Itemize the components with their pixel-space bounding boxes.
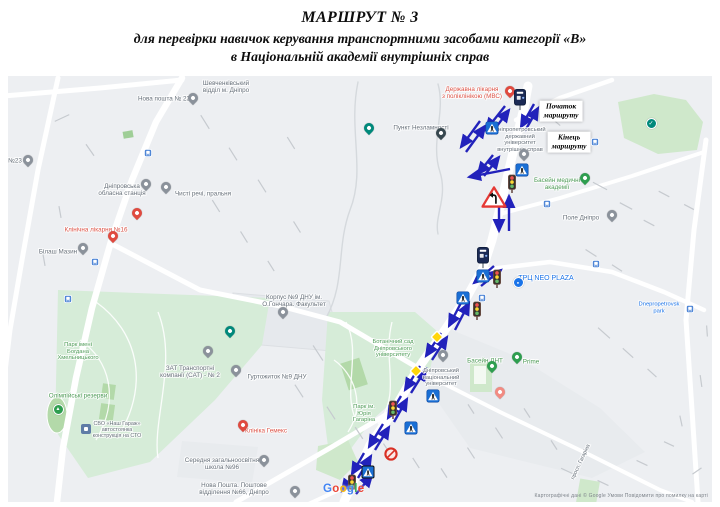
page-title: МАРШРУТ № 3 для перевірки навичок керува… [0,9,720,65]
map-label: Ботанічний сад Дніпровського університет… [372,339,413,359]
blue-square-map-pin [81,424,91,434]
priority-diamond-sign-icon [430,330,444,344]
crosswalk-sign-icon [427,390,440,403]
route-arrow [478,155,493,174]
parking-meter-sign-icon [477,247,490,269]
street-dash [684,204,694,209]
street-dash [241,231,248,242]
traffic-light-sign-icon [389,401,398,420]
street-dash [268,261,274,271]
warning-turn-sign-icon [482,186,507,209]
traffic-light-sign-icon [508,175,517,194]
map-label: Державна лікарня з поліклінікою (МВС) [442,86,502,100]
map-label: СВО «Наш Гараж» автостоянка конструкція … [93,421,142,439]
map-label: Клініка Гемекс [245,427,287,434]
map: Нова пошта № 23Шевченківський відділ м. … [8,76,712,502]
map-label: Нова пошта № 23 [138,95,190,102]
street-dash [229,148,237,161]
crosswalk-sign-icon [477,270,490,283]
route-end-label: Кінець маршруту [548,132,591,153]
street-dash [700,375,702,387]
street-dash [620,203,632,210]
map-label: Парк імені Богдана Хмельницького [57,342,98,362]
map-label: Шевченківський відділ м. Дніпро [203,80,249,94]
traffic-light-sign-icon [473,302,482,321]
google-logo: Google [323,483,364,495]
street-dash [598,328,610,339]
street-dash [637,460,648,465]
crosswalk-dark-sign-icon [362,466,375,479]
map-label: ТРЦ NEO PLAZA [518,275,573,283]
route-arrow [466,126,485,152]
transit-stop-icon [543,200,551,208]
street-dash [623,348,633,357]
street-dash [295,385,303,398]
map-label: Чисті речі, пральня [175,190,231,197]
street-dash [287,137,294,149]
street-dash [659,191,670,197]
route-arrow [461,121,480,147]
crosswalk-sign-icon [457,292,470,305]
street-dash [212,200,219,212]
title-line3: в Національній академії внутрішніх справ [0,49,720,65]
map-label: ЗАТ Транспортні компанії (САТ) - № 2 [160,365,220,379]
street-dash [644,220,655,226]
map-label: Гуртожиток №9 ДНУ [247,373,306,380]
map-label: Дніпровська обласна станція [98,183,145,197]
route-map-page: МАРШРУТ № 3 для перевірки навичок керува… [0,0,720,507]
crosswalk-sign-icon [486,122,499,135]
map-label: №23 [8,157,22,164]
map-label: Басейн медичні академії [534,177,580,191]
crosswalk-sign-icon [516,164,529,177]
street-dash [258,180,266,193]
transit-stop-icon [478,294,486,302]
transit-stop-icon [591,138,599,146]
street-dash [586,249,597,256]
title-line1: МАРШРУТ № 3 [0,9,720,27]
map-label: Парк ім. Юрія Гагаріна [353,404,375,424]
route-start-label: Початок маршруту [540,101,583,122]
map-attribution: Картографічні дані © Google Умови Повідо… [535,493,708,499]
street-dash [59,206,61,218]
no-stopping-sign-icon [384,447,398,461]
street-dash [707,326,708,337]
priority-diamond-sign-icon [409,364,423,378]
map-label: Білаш Мазин [39,248,77,255]
street-dash [55,115,70,122]
map-label: Олімпійські резерви [49,392,107,399]
map-label: Dnepropetrovsk park [633,301,686,314]
street-dash [294,221,301,232]
map-label: Prime [523,358,539,365]
street-dash [86,144,94,155]
map-label: Поле Дніпро [563,214,599,221]
street-dash [201,115,209,129]
blue-circle-map-pin: ● [513,277,524,288]
title-line2: для перевірки навичок керування транспор… [0,31,720,47]
transit-stop-icon [144,149,152,157]
map-label: Корпус №9 ДНУ ім. О.Гончара. Факультет [262,294,325,308]
map-label: Клінічна лікарня №16 [65,226,128,233]
map-label: Нова Пошта. Поштове відділення №66, Дніп… [199,482,269,496]
map-label: Басейн ДНТ [467,357,503,364]
street-dash [441,468,447,477]
transit-stop-icon [64,295,72,303]
transit-stop-icon [686,305,694,313]
map-label: Дніпровський національний університет [423,368,460,388]
traffic-light-sign-icon [493,270,502,289]
street-dash [680,416,682,427]
street-dash [664,442,674,447]
street-dash [413,458,420,468]
map-label: Середня загальноосвітня школа №96 [185,457,259,471]
crosswalk-sign-icon [405,422,418,435]
transit-stop-icon [91,258,99,266]
street-dash [648,369,657,377]
street-dash [43,254,45,266]
street-dash [467,448,474,459]
transit-stop-icon [592,260,600,268]
teal-check-map-pin: ✓ [646,118,657,129]
green-circle-map-pin: ▲ [53,404,64,415]
parking-meter-sign-icon [514,89,527,111]
